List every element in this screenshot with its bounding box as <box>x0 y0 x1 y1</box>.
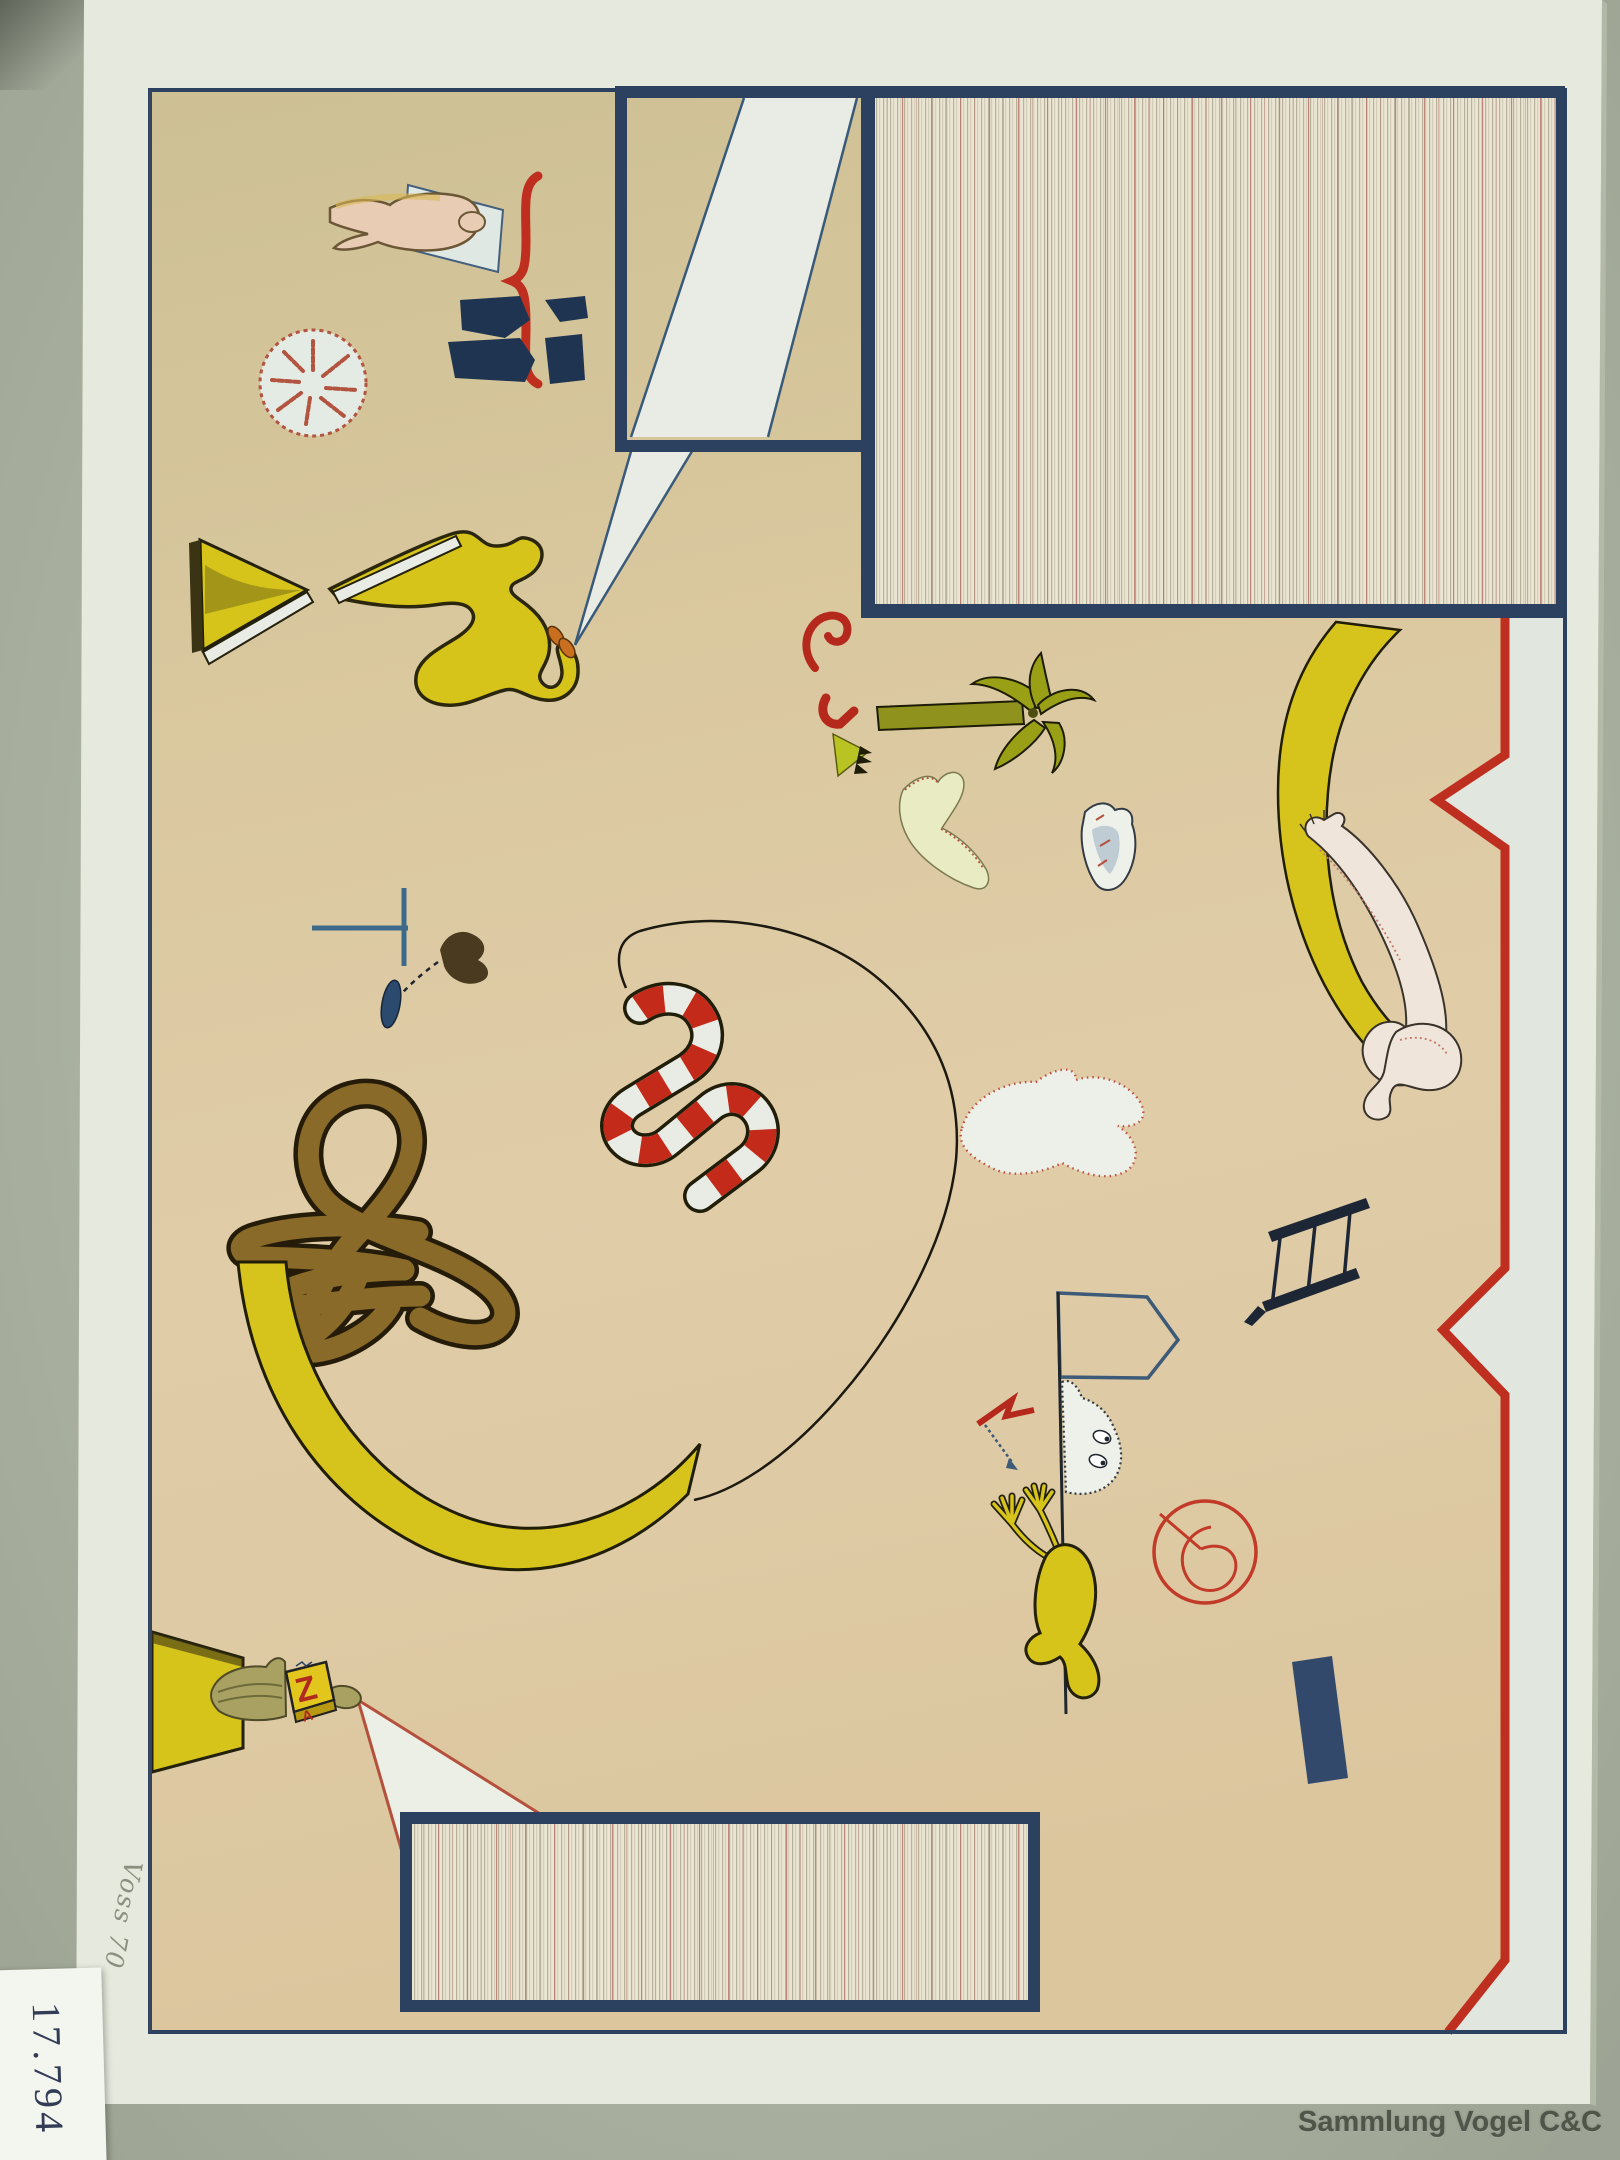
artwork-scene: Z A <box>0 0 1620 2160</box>
stamp-circle <box>260 330 366 436</box>
collection-watermark: Sammlung Vogel C&C <box>1298 2106 1602 2139</box>
inventory-number: 17.794 <box>23 2001 74 2136</box>
inventory-sticker: 17.794 <box>0 1967 107 2160</box>
bottom-stone-panel <box>400 1812 1040 2012</box>
photographed-artwork: Z A 17.794 Voss 70 Sammlung Vogel C&C <box>0 0 1620 2160</box>
